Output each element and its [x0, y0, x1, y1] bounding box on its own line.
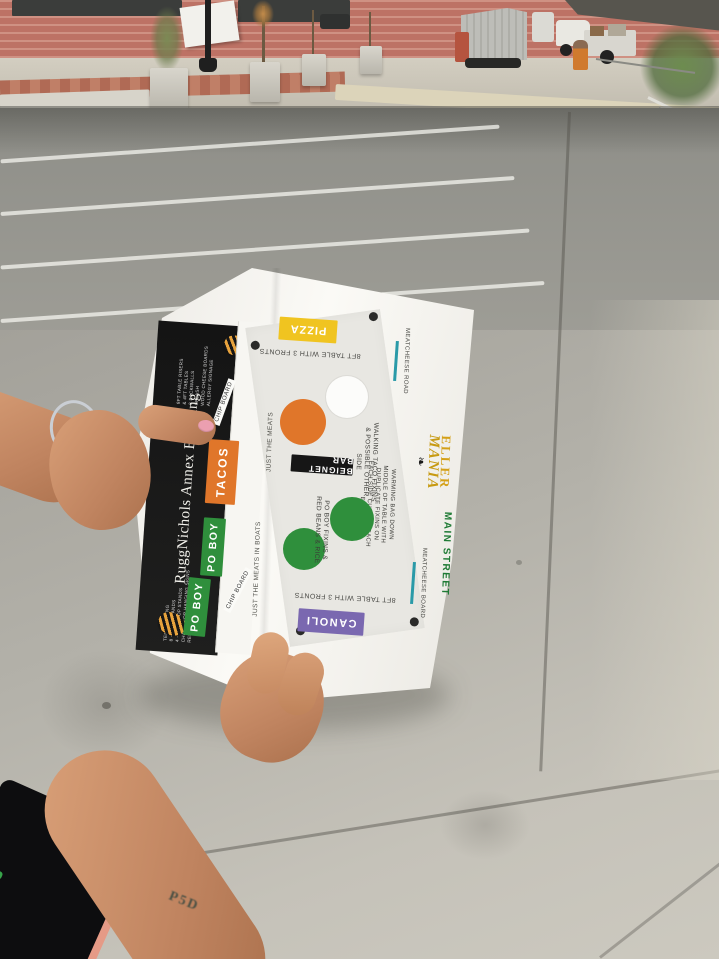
phone-screen-glint: [0, 865, 3, 880]
cargo: [590, 26, 604, 36]
sun-patch: [590, 300, 719, 780]
ellermania-logo: ELLER MANIA ❧: [414, 424, 453, 499]
corner-dot: [409, 617, 419, 627]
booth-canoli: CANOLI: [297, 608, 364, 636]
worker-orange-vest: [573, 40, 588, 70]
shadow-edge: [0, 106, 719, 154]
dot-green: [330, 497, 374, 541]
floor-stain: [440, 790, 530, 860]
cargo: [608, 24, 626, 36]
logo-flourish-icon: ❧: [414, 456, 428, 467]
dot-white: [326, 376, 368, 418]
truck-back-panel: [461, 8, 527, 60]
dry-plant: [252, 0, 274, 28]
white-van: [532, 12, 554, 42]
concrete-planter: [360, 46, 382, 74]
lamp-post-base: [199, 58, 217, 72]
lamp-post: [205, 0, 211, 66]
note-poboy-fixins: PO BOY FIXINS & RED BEANS & RICE: [312, 493, 331, 568]
bench: [320, 14, 350, 29]
tree-trunk: [312, 10, 314, 56]
booth-tacos: TACOS: [205, 439, 239, 505]
floor-spot: [516, 560, 522, 565]
concrete-planter: [150, 68, 188, 110]
street-main: MAIN STREET: [439, 512, 453, 597]
floor-spot: [102, 702, 111, 709]
booth-beignet-bar: BEIGNET BAR: [290, 454, 353, 475]
booth-poboy-1: PO BOY: [200, 517, 226, 576]
truck-wheels: [465, 58, 521, 68]
event-map-paper: 8FT TABLE RISERS & 4FT TABLES 3 BACKWALL…: [118, 258, 490, 718]
box-truck: [455, 6, 533, 68]
concrete-planter: [250, 62, 280, 102]
dot-orange: [280, 399, 326, 445]
corner-dot: [368, 312, 378, 322]
photograph: 8FT TABLE RISERS & 4FT TABLES 3 BACKWALL…: [0, 0, 719, 959]
tree-trunk: [369, 12, 371, 48]
concrete-planter: [302, 54, 326, 86]
booth-pizza: PIZZA: [278, 317, 337, 344]
plant-stems: [150, 6, 184, 72]
wheel: [560, 44, 572, 56]
